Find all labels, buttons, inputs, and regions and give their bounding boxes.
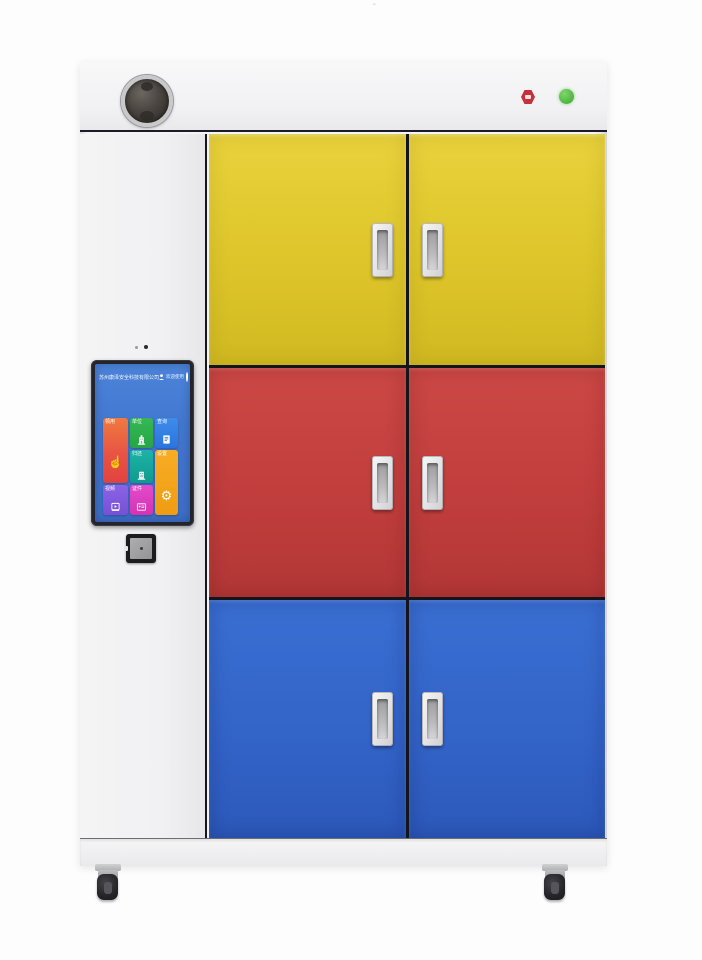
tile-return[interactable]: 归还 — [130, 450, 153, 483]
locker-door-red-right[interactable] — [409, 368, 606, 597]
tile-label: 视频 — [105, 487, 115, 492]
cabinet-base — [80, 838, 607, 866]
door-row-red — [209, 368, 605, 597]
user-label: 欢迎使用 — [166, 374, 184, 380]
tile-label: 证件 — [132, 487, 142, 492]
tile-label: 设置 — [157, 452, 167, 457]
tile-records[interactable]: 查询 — [155, 418, 178, 448]
camera-lens-dot — [141, 82, 153, 91]
locker-door-blue-right[interactable] — [409, 600, 606, 838]
caster-wheel-left — [92, 864, 124, 902]
tile-label: 单位 — [132, 420, 142, 425]
locker-door-yellow-right[interactable] — [409, 134, 606, 365]
camera-dot-icon — [144, 345, 148, 349]
locker-door-yellow-left[interactable] — [209, 134, 406, 365]
handle-recess — [377, 230, 388, 270]
locker-door-red-left[interactable] — [209, 368, 406, 597]
camera-lens-dot — [140, 111, 154, 121]
handle-recess — [427, 463, 438, 503]
door-handle[interactable] — [422, 223, 443, 277]
app-tile-grid: 领用 ☝ 单位 查询 — [103, 418, 181, 516]
kiosk-screen[interactable]: 苏州康泽安全科技有限公司 欢迎使用 领用 ☝ 单位 — [95, 364, 190, 522]
handle-recess — [427, 699, 438, 739]
company-name: 苏州康泽安全科技有限公司 — [99, 374, 159, 381]
gears-icon: ⚙ — [155, 491, 178, 501]
tile-label: 查询 — [157, 420, 167, 425]
caster-wheel-right — [539, 864, 571, 902]
handle-recess — [377, 463, 388, 503]
tile-id-card[interactable]: 证件 — [130, 485, 153, 515]
handle-recess — [427, 230, 438, 270]
kiosk-screen-bezel: 苏州康泽安全科技有限公司 欢迎使用 领用 ☝ 单位 — [91, 360, 194, 526]
building-return-icon — [130, 469, 153, 481]
locker-door-blue-left[interactable] — [209, 600, 406, 838]
user-icon — [159, 374, 164, 380]
top-panel — [80, 62, 607, 132]
camera-speaker-icon — [121, 75, 173, 127]
smart-locker-cabinet: 苏州康泽安全科技有限公司 欢迎使用 领用 ☝ 单位 — [80, 62, 607, 866]
power-status-light — [559, 89, 574, 104]
card-reader[interactable] — [126, 534, 156, 563]
tile-claim[interactable]: 领用 ☝ — [103, 418, 128, 483]
building-icon — [130, 434, 153, 446]
reader-notch — [125, 546, 128, 551]
tile-label: 领用 — [105, 420, 115, 425]
tile-video[interactable]: 视频 — [103, 485, 128, 515]
tile-organization[interactable]: 单位 — [130, 418, 153, 448]
tap-hand-icon: ☝ — [103, 457, 128, 467]
product-photo-stage: ⌃ 苏州康泽安全科技有限公司 欢迎使用 — [0, 0, 702, 960]
reader-pad — [130, 538, 152, 559]
door-handle[interactable] — [422, 692, 443, 746]
screen-header: 苏州康泽安全科技有限公司 欢迎使用 — [95, 369, 190, 385]
door-row-yellow — [209, 134, 605, 365]
record-list-icon — [155, 434, 178, 446]
kiosk-column: 苏州康泽安全科技有限公司 欢迎使用 领用 ☝ 单位 — [80, 134, 207, 838]
door-handle[interactable] — [422, 456, 443, 510]
locker-door-grid — [209, 134, 605, 838]
video-icon — [103, 502, 128, 513]
sensor-dot-icon — [135, 346, 138, 349]
emergency-stop-button[interactable] — [521, 90, 535, 104]
door-handle[interactable] — [372, 223, 393, 277]
handle-recess — [377, 699, 388, 739]
id-card-icon — [130, 502, 153, 513]
user-area[interactable]: 欢迎使用 — [159, 374, 184, 380]
tile-label: 归还 — [132, 452, 142, 457]
door-handle[interactable] — [372, 456, 393, 510]
door-row-blue — [209, 600, 605, 838]
tile-settings[interactable]: 设置 ⚙ — [155, 450, 178, 515]
door-handle[interactable] — [372, 692, 393, 746]
cursor-artifact: ⌃ — [371, 3, 379, 11]
power-icon[interactable] — [186, 372, 188, 382]
